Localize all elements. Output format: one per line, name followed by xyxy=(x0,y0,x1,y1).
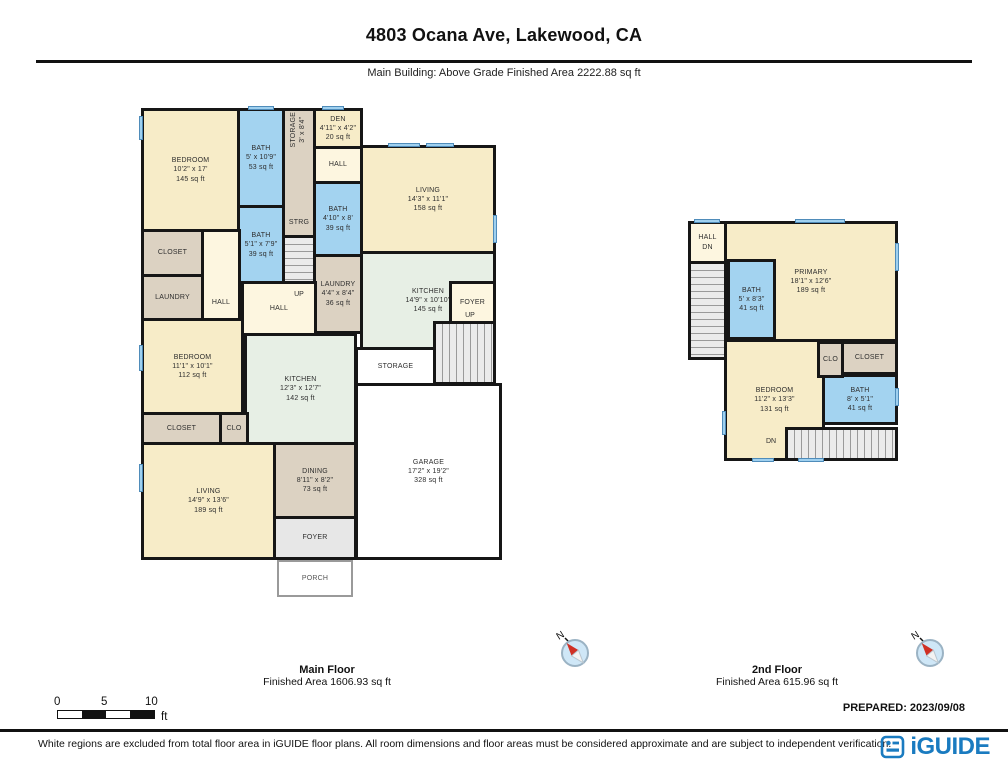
room-name: LIVING xyxy=(416,186,440,195)
window xyxy=(694,219,720,223)
room-name: KITCHEN xyxy=(412,287,444,296)
compass-n-label: N xyxy=(555,629,567,642)
scale-5: 5 xyxy=(101,696,107,708)
room-porch: PORCH xyxy=(277,560,353,597)
room-hall-center: HALL xyxy=(241,281,317,336)
room-area: 53 sq ft xyxy=(249,163,274,172)
room-name: LAUNDRY xyxy=(155,293,190,302)
window xyxy=(322,106,344,110)
room-name: LIVING xyxy=(196,487,220,496)
room-area: 41 sq ft xyxy=(848,404,873,413)
room-dims: 4'10" x 8' xyxy=(323,214,353,223)
footer-disclaimer: White regions are excluded from total fl… xyxy=(38,738,891,750)
room-dims: 17'2" x 19'2" xyxy=(408,467,449,476)
window xyxy=(139,345,143,371)
room-name: STORAGE xyxy=(378,362,414,371)
scale-bar: 0 5 10 ft xyxy=(57,696,197,719)
room-name: HALL xyxy=(329,160,347,169)
window xyxy=(493,215,497,243)
room-closet-top-left: CLOSET xyxy=(141,229,204,277)
window xyxy=(139,116,143,140)
room-dims: 14'9" x 10'10" xyxy=(405,296,450,305)
room-name: CLOSET xyxy=(167,424,196,433)
room-name: HALL xyxy=(698,233,716,242)
scale-unit: ft xyxy=(161,711,167,723)
room-closet-bottom-left: CLOSET xyxy=(141,412,222,445)
room-garage: GARAGE 17'2" x 19'2" 328 sq ft xyxy=(355,383,502,560)
room-name: PORCH xyxy=(302,574,328,583)
room-area: 145 sq ft xyxy=(176,175,205,184)
window xyxy=(426,143,454,147)
room-dims: 5'1" x 7'9" xyxy=(245,240,278,249)
up-label-center: UP xyxy=(282,291,316,298)
window xyxy=(248,106,274,110)
compass-icon: N xyxy=(909,626,947,672)
room-area: 39 sq ft xyxy=(249,250,274,259)
prepared-date: PREPARED: 2023/09/08 xyxy=(843,702,965,714)
room-storage-tall: STORAGE 3' x 8'4" STRG xyxy=(282,108,316,238)
room-dims: 8'11" x 8'2" xyxy=(297,476,333,485)
room-name: CLO xyxy=(227,424,242,433)
room-name: BATH xyxy=(742,286,761,295)
room-dims: 5' x 10'9" xyxy=(246,153,276,162)
room-name: DEN xyxy=(330,115,345,124)
room-area: 112 sq ft xyxy=(178,371,206,380)
room-area: 20 sq ft xyxy=(326,133,351,142)
room-kitchen-center: KITCHEN 12'3" x 12'7" 142 sq ft xyxy=(244,333,357,445)
room-dims: 11'1" x 10'1" xyxy=(172,362,212,371)
room-name: CLO xyxy=(823,355,838,364)
room-dims: 4'11" x 4'2" xyxy=(320,124,356,133)
stairs-2f-bottom-down xyxy=(785,427,898,461)
room-area: 41 sq ft xyxy=(739,304,764,313)
room-laundry-middle: LAUNDRY 4'4" x 8'4" 36 sq ft xyxy=(313,254,363,334)
scale-bar-segments xyxy=(57,710,155,719)
room-hall-left: HALL xyxy=(201,229,241,324)
compass-n-label: N xyxy=(910,629,922,642)
room-name: BEDROOM xyxy=(756,386,794,395)
scale-0: 0 xyxy=(54,696,60,708)
room-area: 131 sq ft xyxy=(760,405,789,414)
iguide-brand: iGUIDE xyxy=(880,733,990,761)
iguide-logo-text: iGUIDE xyxy=(910,733,990,761)
window xyxy=(895,243,899,271)
room-den: DEN 4'11" x 4'2" 20 sq ft xyxy=(313,108,363,149)
main-floor-area: Finished Area 1606.93 sq ft xyxy=(222,676,432,688)
iguide-logo-icon xyxy=(880,734,906,760)
room-storage-center: STORAGE xyxy=(355,347,436,386)
room-name: STORAGE xyxy=(290,112,297,148)
window xyxy=(895,388,899,406)
room-name: KITCHEN xyxy=(284,375,316,384)
room-area: 328 sq ft xyxy=(414,476,443,485)
scale-10: 10 xyxy=(145,696,158,708)
footer-divider xyxy=(0,729,1008,732)
room-name: BATH xyxy=(252,231,271,240)
room-dims: 14'9" x 13'6" xyxy=(188,496,229,505)
room-storage-vertical-label: STORAGE 3' x 8'4" xyxy=(290,112,308,148)
room-area: 189 sq ft xyxy=(797,286,826,295)
room-area: 36 sq ft xyxy=(326,299,351,308)
room-dims: 14'3" x 11'1" xyxy=(408,195,448,204)
dn-label-bottom: DN xyxy=(758,438,784,445)
page-subtitle: Main Building: Above Grade Finished Area… xyxy=(0,67,1008,79)
room-clo-bottom-left: CLO xyxy=(219,412,249,445)
window xyxy=(752,458,774,462)
room-name: BATH xyxy=(252,144,271,153)
floorplan-page: 4803 Ocana Ave, Lakewood, CA Main Buildi… xyxy=(0,0,1008,778)
stairs-2f-down xyxy=(688,261,727,360)
compass-icon: N xyxy=(554,626,592,672)
header-divider xyxy=(36,60,972,63)
room-area: 73 sq ft xyxy=(303,485,328,494)
room-dims: 4'4" x 8'4" xyxy=(322,289,355,298)
room-name: FOYER xyxy=(460,298,485,307)
room-foyer-bottom: FOYER xyxy=(273,516,357,560)
room-name: HALL xyxy=(212,298,230,307)
room-laundry-left: LAUNDRY xyxy=(141,274,204,321)
room-living-top-right: LIVING 14'3" x 11'1" 158 sq ft xyxy=(360,145,496,254)
room-name: CLOSET xyxy=(158,248,187,257)
room-name: BEDROOM xyxy=(174,353,212,362)
room-dims: 5' x 8'3" xyxy=(738,295,764,304)
room-name: BATH xyxy=(851,386,870,395)
second-floor-area: Finished Area 615.96 sq ft xyxy=(672,676,882,688)
room-dining: DINING 8'11" x 8'2" 73 sq ft xyxy=(273,442,357,519)
room-area: 39 sq ft xyxy=(326,224,351,233)
room-area: 158 sq ft xyxy=(414,204,443,213)
main-floor-name: Main Floor xyxy=(222,664,432,676)
second-floor-name: 2nd Floor xyxy=(672,664,882,676)
room-area: 142 sq ft xyxy=(286,394,315,403)
room-name: LAUNDRY xyxy=(321,280,356,289)
dn-label-top: DN xyxy=(702,243,713,252)
room-name: FOYER xyxy=(302,533,327,542)
room-name: BATH xyxy=(329,205,348,214)
room-hall-2f: HALL DN xyxy=(688,221,727,264)
room-dims: 3' x 8'4" xyxy=(299,117,306,143)
room-dims: 12'3" x 12'7" xyxy=(280,384,321,393)
main-floor-caption: Main Floor Finished Area 1606.93 sq ft xyxy=(222,664,432,688)
window xyxy=(795,219,845,223)
room-name: PRIMARY xyxy=(794,268,827,277)
window xyxy=(388,143,420,147)
window xyxy=(722,411,726,435)
room-name: HALL xyxy=(270,304,288,313)
room-bedroom-middle-left: BEDROOM 11'1" x 10'1" 112 sq ft xyxy=(141,318,244,415)
room-living-bottom-left: LIVING 14'9" x 13'6" 189 sq ft xyxy=(141,442,276,560)
room-name: DINING xyxy=(302,467,328,476)
room-bath-top-left: BATH 5' x 10'9" 53 sq ft xyxy=(237,108,285,208)
room-name: BEDROOM xyxy=(172,156,210,165)
second-floor-caption: 2nd Floor Finished Area 615.96 sq ft xyxy=(672,664,882,688)
room-area: 145 sq ft xyxy=(414,305,443,314)
stairs-right-up xyxy=(433,321,496,385)
room-closet-2f: CLOSET xyxy=(841,341,898,375)
room-dims: 8' x 5'1" xyxy=(847,395,873,404)
page-title: 4803 Ocana Ave, Lakewood, CA xyxy=(0,25,1008,46)
room-bath-2f: BATH 8' x 5'1" 41 sq ft xyxy=(822,374,898,425)
room-hall-top: HALL xyxy=(313,146,363,184)
window xyxy=(798,458,824,462)
room-clo-2f: CLO xyxy=(817,341,844,378)
room-name: GARAGE xyxy=(413,458,444,467)
room-dims: 10'2" x 17' xyxy=(173,165,207,174)
room-bath-left: BATH 5'1" x 7'9" 39 sq ft xyxy=(237,205,285,285)
room-name: CLOSET xyxy=(855,353,884,362)
window xyxy=(139,464,143,492)
room-area: 189 sq ft xyxy=(194,506,223,515)
room-bedroom-top-left: BEDROOM 10'2" x 17' 145 sq ft xyxy=(141,108,240,232)
room-dims: 11'2" x 13'3" xyxy=(754,395,794,404)
room-dims: 18'1" x 12'6" xyxy=(791,277,832,286)
up-label-right: UP xyxy=(455,312,485,319)
room-bath-primary: BATH 5' x 8'3" 41 sq ft xyxy=(727,259,776,340)
room-name-strg: STRG xyxy=(289,218,309,227)
room-bath-middle: BATH 4'10" x 8' 39 sq ft xyxy=(313,181,363,257)
